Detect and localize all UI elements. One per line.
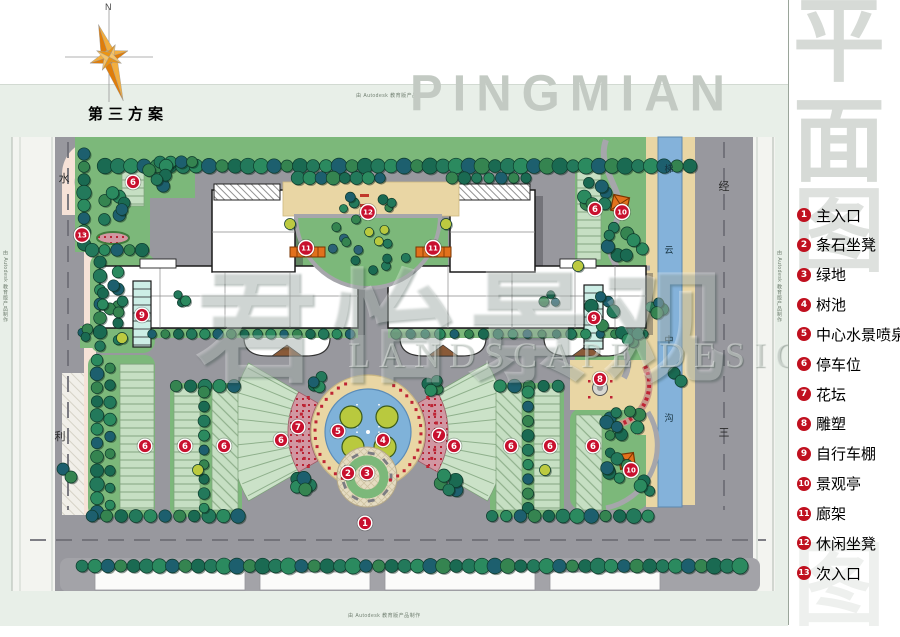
svg-text:6: 6 xyxy=(278,436,284,446)
legend-item-5: 5中心水景喷泉 xyxy=(797,325,900,343)
legend-item-7: 7花坛 xyxy=(797,385,846,403)
svg-text:6: 6 xyxy=(451,442,457,452)
plan-marker-9: 9 xyxy=(134,307,150,323)
plan-marker-13: 13 xyxy=(73,226,90,243)
left-road-label-1: 水 xyxy=(59,172,70,185)
legend-item-4: 4树池 xyxy=(797,296,846,314)
legend-item-label: 树池 xyxy=(816,294,846,315)
legend-item-label: 花坛 xyxy=(816,384,846,405)
plot-stamp-bottom: 由 Autodesk 教育版产品制作 xyxy=(348,612,421,619)
plan-marker-1: 1 xyxy=(357,515,373,531)
vertical-watermark-char-2: 面 xyxy=(793,96,885,188)
page-title: 第三方案 xyxy=(88,103,168,124)
svg-text:6: 6 xyxy=(592,205,598,215)
svg-text:7: 7 xyxy=(295,423,301,433)
vertical-watermark-char-1: 平 xyxy=(793,0,885,88)
legend-item-label: 廊架 xyxy=(816,503,846,524)
svg-text:6: 6 xyxy=(221,442,227,452)
plan-marker-11: 11 xyxy=(424,239,441,256)
legend-badge: 9 xyxy=(797,447,811,461)
svg-text:6: 6 xyxy=(142,442,148,452)
legend-badge: 13 xyxy=(797,566,811,580)
plan-marker-6: 6 xyxy=(273,432,289,448)
legend-item-3: 3绿地 xyxy=(797,266,846,284)
legend-item-10: 10景观亭 xyxy=(797,475,861,493)
pingmian-watermark: PINGMIAN xyxy=(410,65,735,123)
svg-text:7: 7 xyxy=(436,431,442,441)
svg-text:1: 1 xyxy=(362,519,368,529)
legend-panel: 平 面 图 图 1主入口2条石坐凳3绿地4树池5中心水景喷泉6停车位7花坛8雕塑… xyxy=(788,0,900,625)
legend-item-1: 1主入口 xyxy=(797,206,861,224)
legend-item-label: 中心水景喷泉 xyxy=(816,324,900,345)
legend-item-13: 13次入口 xyxy=(797,564,861,582)
svg-text:6: 6 xyxy=(130,178,136,188)
svg-text:11: 11 xyxy=(428,245,438,253)
svg-text:9: 9 xyxy=(139,311,145,321)
plan-marker-3: 3 xyxy=(359,465,375,481)
plan-marker-6: 6 xyxy=(125,174,141,190)
plan-marker-10: 10 xyxy=(622,461,639,478)
legend-item-label: 景观亭 xyxy=(816,473,861,494)
plan-marker-6: 6 xyxy=(177,438,193,454)
svg-text:9: 9 xyxy=(591,314,597,324)
legend-item-label: 雕塑 xyxy=(816,413,846,434)
legend-badge: 6 xyxy=(797,357,811,371)
plan-marker-7: 7 xyxy=(431,427,447,443)
legend-item-2: 2条石坐凳 xyxy=(797,236,876,254)
legend-item-label: 绿地 xyxy=(816,264,846,285)
legend-item-label: 自行车棚 xyxy=(816,443,876,464)
plan-marker-12: 12 xyxy=(359,203,376,220)
legend-item-9: 9自行车棚 xyxy=(797,445,876,463)
svg-text:10: 10 xyxy=(626,467,636,475)
plan-marker-10: 10 xyxy=(613,203,630,220)
svg-text:6: 6 xyxy=(590,442,596,452)
svg-text:云: 云 xyxy=(664,245,673,255)
legend-item-11: 11廊架 xyxy=(797,505,846,523)
svg-text:11: 11 xyxy=(301,245,311,253)
legend-item-12: 12休闲坐凳 xyxy=(797,534,876,552)
right-road-label-2: 三 xyxy=(719,427,730,439)
svg-text:中: 中 xyxy=(664,334,673,345)
plan-marker-8: 8 xyxy=(592,371,608,387)
plan-marker-4: 4 xyxy=(375,432,391,448)
svg-text:13: 13 xyxy=(77,232,87,240)
compass-n-label: N xyxy=(105,2,112,12)
legend-item-label: 主入口 xyxy=(816,205,861,226)
plan-marker-7: 7 xyxy=(290,419,306,435)
plan-marker-9: 9 xyxy=(586,310,602,326)
legend-badge: 8 xyxy=(797,417,811,431)
svg-text:6: 6 xyxy=(182,442,188,452)
plan-marker-11: 11 xyxy=(297,239,314,256)
left-road-label-2: 利 xyxy=(55,430,66,443)
legend-badge: 10 xyxy=(797,477,811,491)
legend-item-label: 次入口 xyxy=(816,563,861,584)
legend-badge: 5 xyxy=(797,327,811,341)
legend-badge: 3 xyxy=(797,268,811,282)
plan-marker-6: 6 xyxy=(137,438,153,454)
plan-marker-6: 6 xyxy=(446,438,462,454)
svg-text:4: 4 xyxy=(380,436,386,446)
svg-text:6: 6 xyxy=(508,442,514,452)
plan-marker-2: 2 xyxy=(340,465,356,481)
compass-rose-icon: N xyxy=(65,2,153,102)
legend-item-label: 停车位 xyxy=(816,354,861,375)
svg-text:梯: 梯 xyxy=(664,163,673,174)
legend-item-6: 6停车位 xyxy=(797,355,861,373)
legend-badge: 2 xyxy=(797,238,811,252)
plot-stamp-left: 由 Autodesk 教育版产品制作 xyxy=(2,250,9,323)
plan-marker-6: 6 xyxy=(216,438,232,454)
plan-marker-6: 6 xyxy=(542,438,558,454)
legend-badge: 4 xyxy=(797,298,811,312)
svg-text:5: 5 xyxy=(335,427,341,437)
plan-marker-6: 6 xyxy=(585,438,601,454)
svg-text:2: 2 xyxy=(345,469,351,479)
legend-item-8: 8雕塑 xyxy=(797,415,846,433)
svg-text:10: 10 xyxy=(617,209,627,217)
plot-stamp-right: 由 Autodesk 教育版产品制作 xyxy=(776,250,783,323)
legend-item-label: 休闲坐凳 xyxy=(816,533,876,554)
legend-badge: 12 xyxy=(797,536,811,550)
legend-badge: 11 xyxy=(797,507,811,521)
page: { "sheet": { "title": "第三方案", "compass_l… xyxy=(0,0,900,625)
svg-text:3: 3 xyxy=(364,469,370,479)
legend-item-label: 条石坐凳 xyxy=(816,234,876,255)
svg-text:12: 12 xyxy=(363,209,373,217)
plan-marker-6: 6 xyxy=(587,201,603,217)
oval-flower-bed xyxy=(97,232,129,244)
right-road-label-1: 经 xyxy=(719,180,730,193)
svg-text:沟: 沟 xyxy=(664,412,673,423)
svg-text:8: 8 xyxy=(597,375,603,385)
legend-badge: 1 xyxy=(797,208,811,222)
plan-marker-6: 6 xyxy=(503,438,519,454)
legend-badge: 7 xyxy=(797,387,811,401)
svg-text:6: 6 xyxy=(547,442,553,452)
plan-marker-5: 5 xyxy=(330,423,346,439)
